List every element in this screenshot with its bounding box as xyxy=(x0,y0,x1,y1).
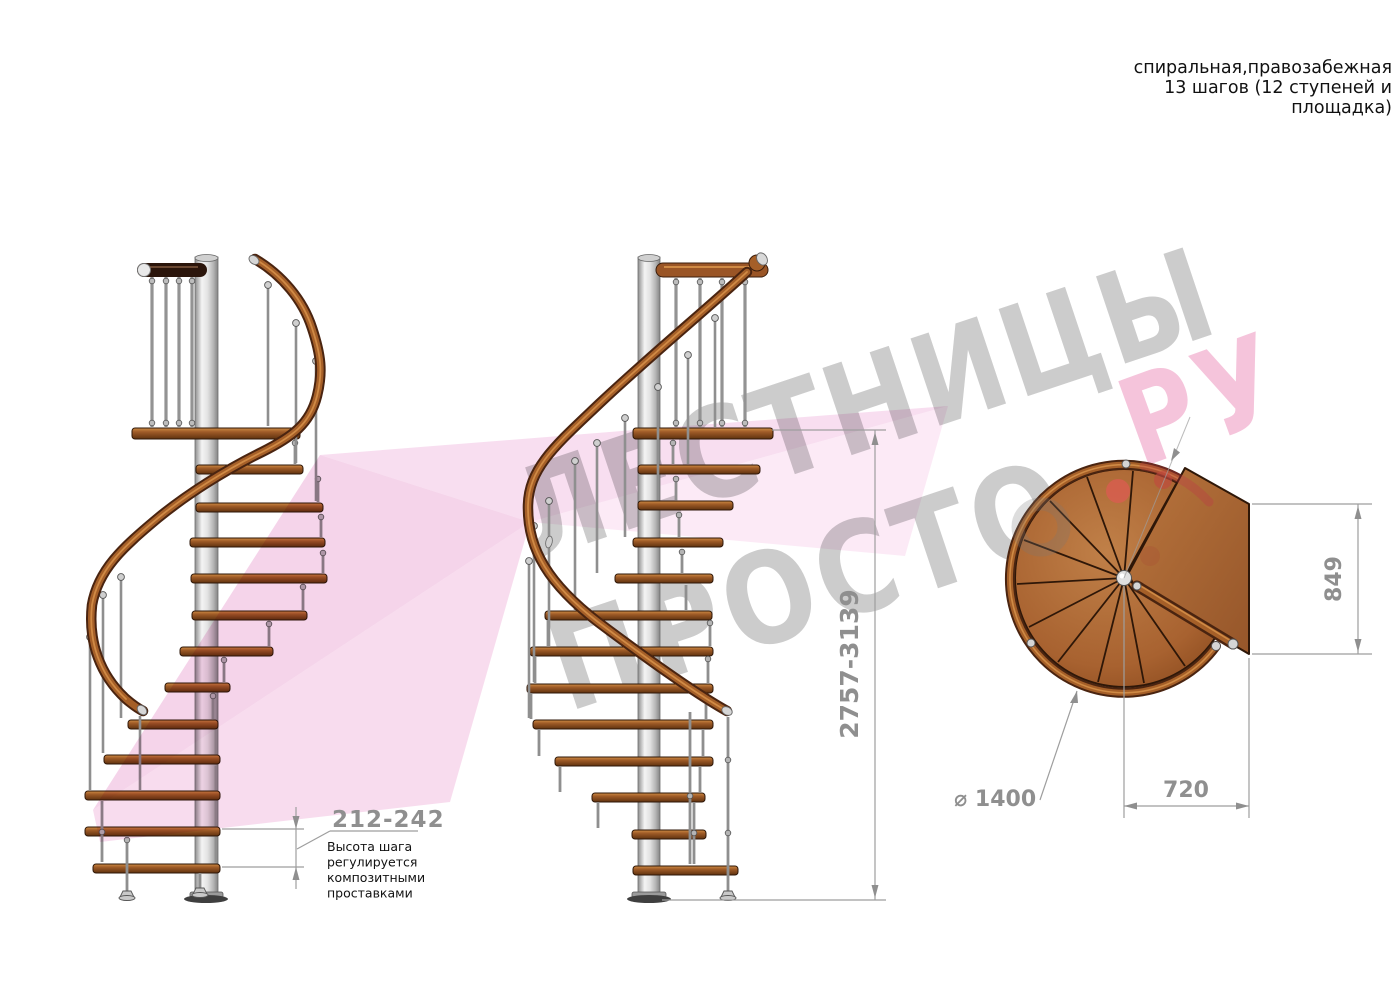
bar-start-cap xyxy=(1133,582,1141,590)
landing-width-label: 720 xyxy=(1163,778,1209,803)
title-line-3: площадка) xyxy=(1291,98,1392,118)
rod-feet xyxy=(720,891,736,901)
tread xyxy=(638,501,733,510)
tread xyxy=(533,720,713,729)
staircase-drawing: ЛЕСТНИЦЫ ПРОСТО РУ xyxy=(0,0,1400,1000)
step-height-label: 212-242 xyxy=(332,807,445,833)
landing-tread xyxy=(633,428,773,439)
tread xyxy=(93,864,220,873)
top-plan-view xyxy=(1010,460,1249,693)
diameter-label: ⌀ 1400 xyxy=(954,787,1036,812)
tread xyxy=(615,574,713,583)
step-note-line-1: Высота шага xyxy=(327,839,412,854)
step-note-line-2: регулируется xyxy=(327,855,417,870)
title-line-2: 13 шагов (12 ступеней и xyxy=(1164,78,1392,98)
step-note-line-3: композитными xyxy=(327,870,425,885)
title-line-1: спиральная,правозабежная xyxy=(1134,58,1392,78)
total-height-label: 2757-3139 xyxy=(835,589,864,739)
bar-end-cap xyxy=(1228,639,1238,649)
column-base-flange xyxy=(627,895,671,903)
tread xyxy=(196,465,303,474)
brand-dot-echo xyxy=(1154,471,1172,489)
brand-dot-faint xyxy=(1140,546,1160,566)
drawing-sheet: ЛЕСТНИЦЫ ПРОСТО РУ xyxy=(0,0,1400,1000)
step-note-line-4: проставками xyxy=(327,886,413,901)
baluster-collars xyxy=(149,278,195,426)
landing-tread xyxy=(132,428,300,439)
landing-depth-label: 849 xyxy=(1322,556,1347,602)
tread xyxy=(633,538,723,547)
brand-dot xyxy=(1106,479,1130,503)
tread xyxy=(530,647,713,656)
tread xyxy=(638,465,760,474)
tread xyxy=(545,611,712,620)
tread xyxy=(633,866,738,875)
landing-balusters xyxy=(152,277,192,427)
